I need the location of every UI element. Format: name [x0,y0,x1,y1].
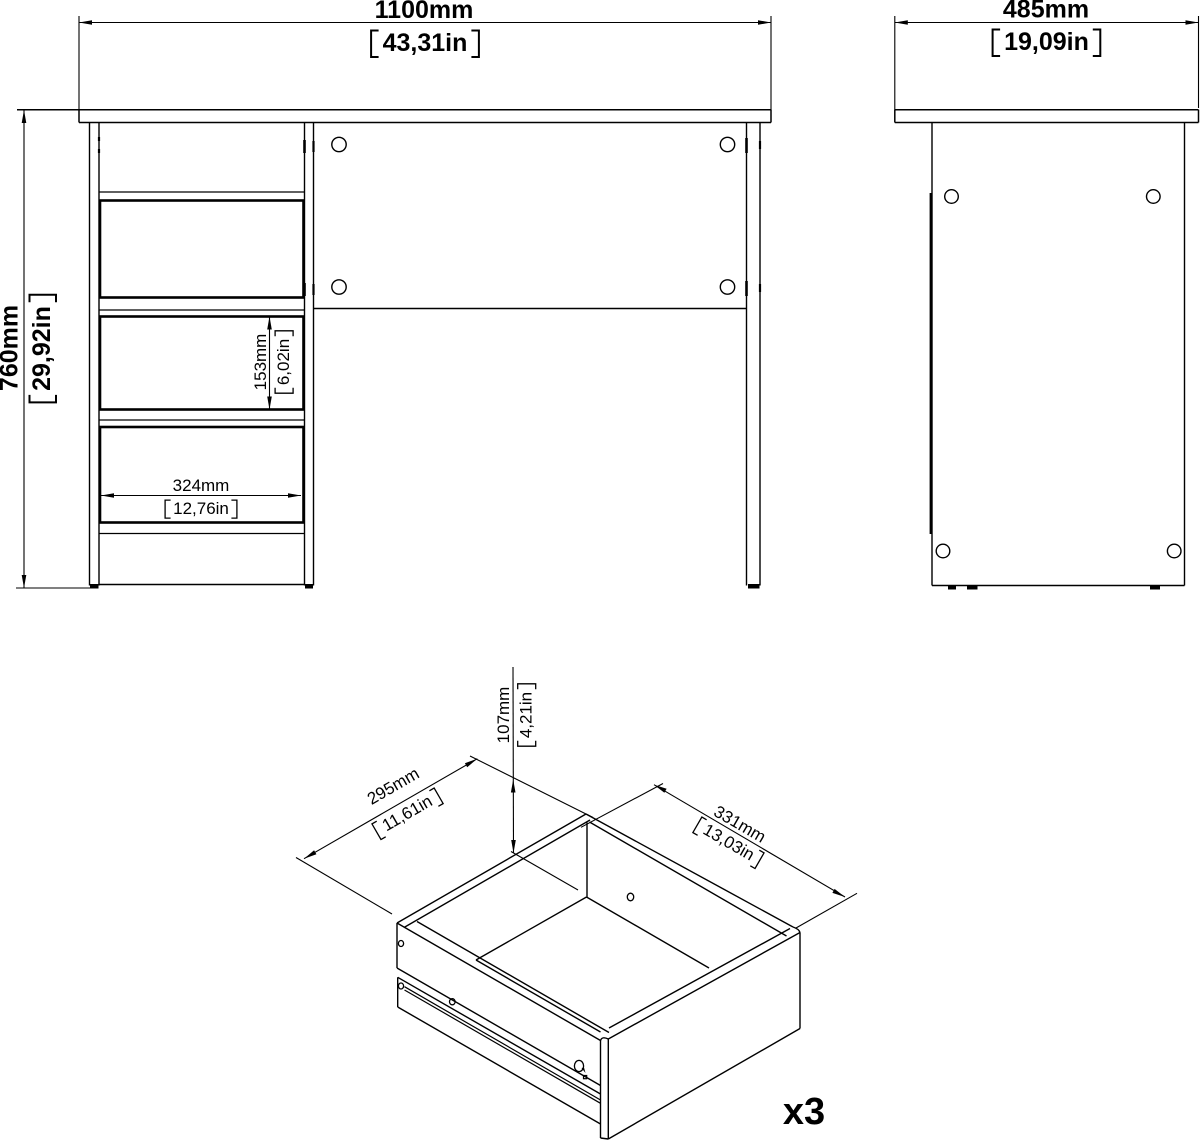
svg-text:324mm: 324mm [173,476,230,495]
svg-text:12,76in: 12,76in [173,499,229,518]
svg-text:153mm: 153mm [251,334,270,391]
svg-text:4,21in: 4,21in [517,692,536,738]
svg-text:x3: x3 [783,1091,825,1133]
svg-text:485mm: 485mm [1003,0,1089,24]
svg-text:6,02in: 6,02in [274,339,293,385]
svg-text:43,31in: 43,31in [383,29,468,57]
svg-text:1100mm: 1100mm [375,0,474,24]
svg-text:19,09in: 19,09in [1004,28,1089,56]
svg-text:760mm: 760mm [0,305,24,391]
svg-text:107mm: 107mm [494,687,513,744]
svg-text:29,92in: 29,92in [28,306,56,391]
